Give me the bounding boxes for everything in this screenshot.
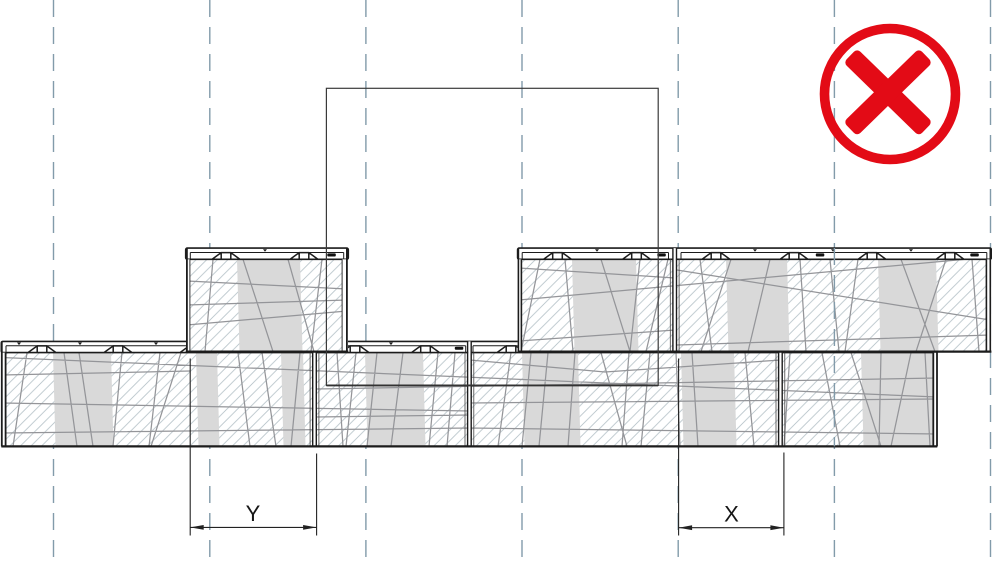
svg-text:X: X bbox=[724, 502, 739, 527]
svg-text:Y: Y bbox=[246, 501, 261, 526]
